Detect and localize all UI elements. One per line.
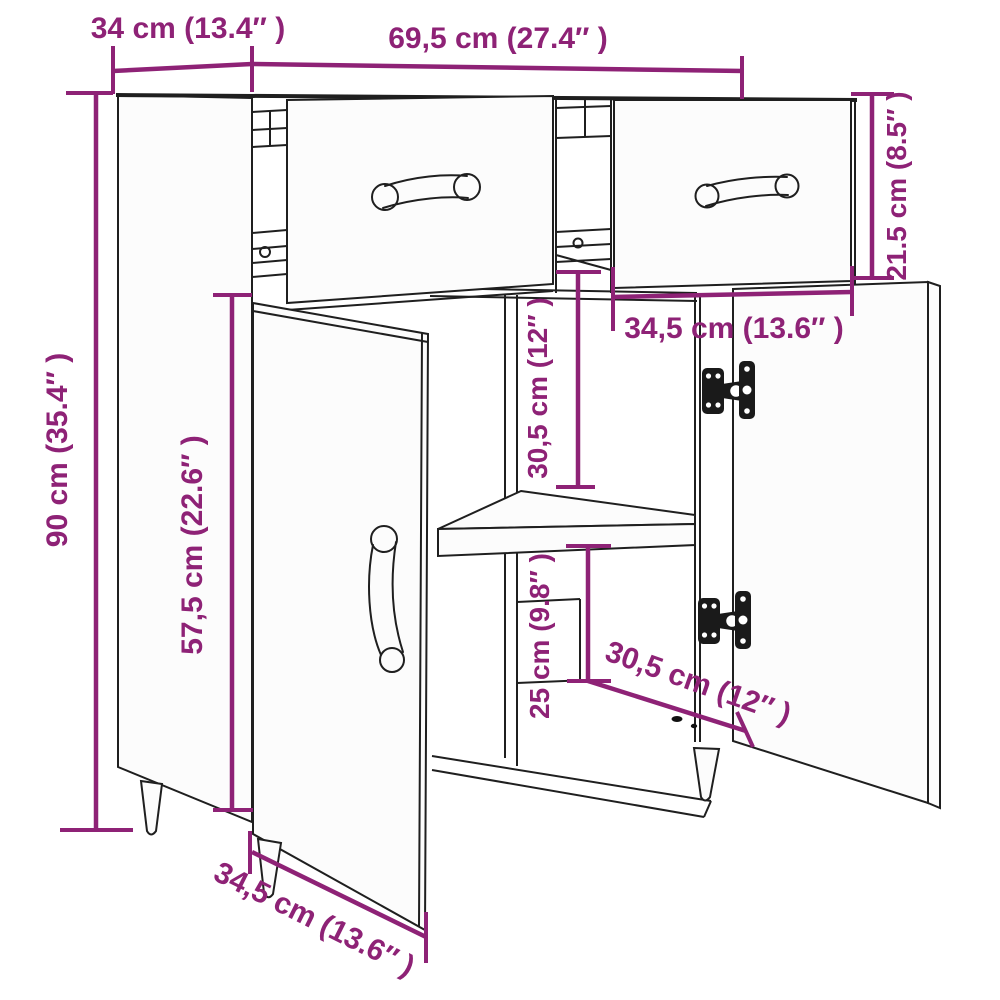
bottom-panel-edge xyxy=(432,756,711,817)
fitting-hole xyxy=(672,716,683,722)
left-door xyxy=(253,303,428,930)
shelf-top-face xyxy=(438,491,695,529)
dim-label-door-height: 57,5 cm (22.6″ ) xyxy=(176,435,209,655)
dim-label-total-height: 90 cm (35.4″ ) xyxy=(41,353,74,547)
dim-lower-compartment-height: 25 cm (9.8″ ) xyxy=(524,546,611,719)
cabinet-leg xyxy=(694,748,719,801)
dim-drawer-height: 21.5 cm (8.5″ ) xyxy=(851,91,912,280)
dimension-diagram: 34 cm (13.4″ ) 69,5 cm (27.4″ ) 21.5 cm … xyxy=(0,0,1000,1000)
door-hinge xyxy=(702,361,755,419)
dim-label-top-depth: 34 cm (13.4″ ) xyxy=(91,12,285,45)
cabinet-line-art xyxy=(116,95,940,930)
dim-top-depth: 34 cm (13.4″ ) xyxy=(91,12,285,94)
dim-label-lower-compartment-height: 25 cm (9.8″ ) xyxy=(524,553,555,719)
dim-label-upper-compartment-height: 30,5 cm (12″ ) xyxy=(522,297,553,479)
left-drawer xyxy=(287,96,553,310)
dim-top-width: 69,5 cm (27.4″ ) xyxy=(252,22,744,99)
door-hinge xyxy=(698,591,751,649)
shelf-front-edge xyxy=(438,524,695,556)
cabinet-leg xyxy=(141,781,162,835)
sideboard-line-drawing: 34 cm (13.4″ ) 69,5 cm (27.4″ ) 21.5 cm … xyxy=(0,0,1000,1000)
dim-upper-compartment-height: 30,5 cm (12″ ) xyxy=(522,272,601,487)
right-door xyxy=(733,282,940,808)
left-slide-rails xyxy=(252,100,287,300)
center-slide-rails xyxy=(556,96,611,293)
dim-label-top-width: 69,5 cm (27.4″ ) xyxy=(388,22,608,55)
fitting-hole xyxy=(691,724,697,728)
dim-label-drawer-height: 21.5 cm (8.5″ ) xyxy=(881,91,912,280)
dim-label-drawer-width: 34,5 cm (13.6″ ) xyxy=(624,312,844,345)
right-drawer xyxy=(614,100,851,288)
